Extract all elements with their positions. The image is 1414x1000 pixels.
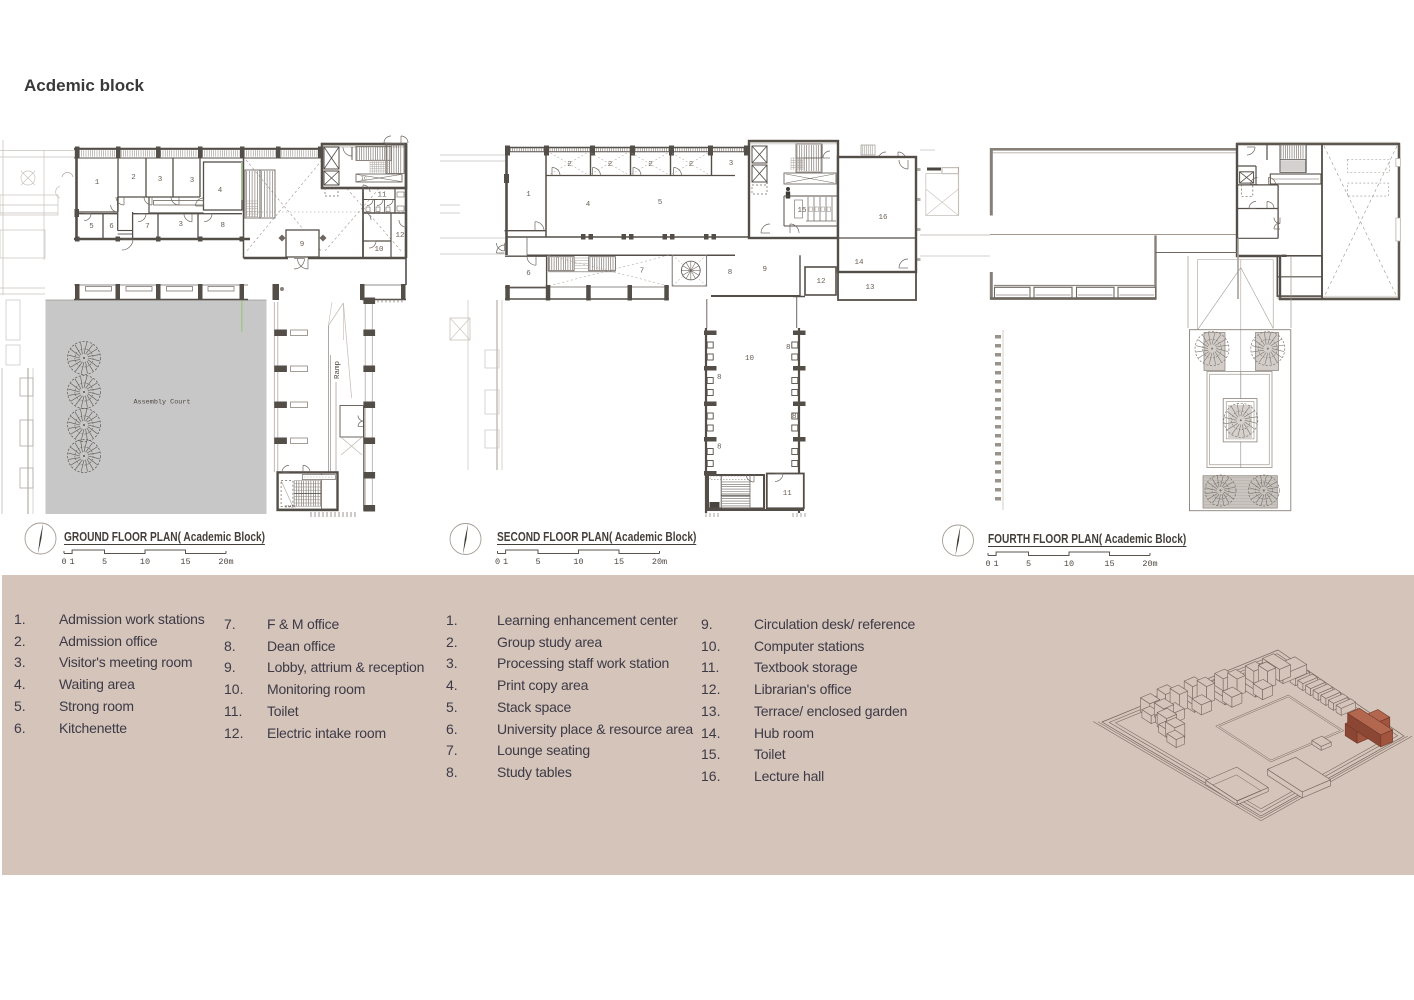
svg-text:3: 3 (190, 177, 195, 185)
svg-text:20m: 20m (218, 557, 233, 567)
svg-text:15: 15 (614, 557, 624, 567)
svg-text:5: 5 (89, 223, 94, 231)
svg-text:7: 7 (145, 223, 150, 231)
svg-text:8: 8 (717, 374, 722, 382)
svg-text:3: 3 (729, 160, 734, 168)
svg-text:6: 6 (526, 270, 531, 278)
svg-text:16: 16 (878, 214, 888, 222)
svg-text:12: 12 (395, 232, 404, 240)
svg-text:5: 5 (658, 199, 663, 207)
svg-text:9: 9 (300, 241, 305, 249)
svg-text:IC: IC (361, 176, 367, 182)
svg-text:1: 1 (526, 191, 531, 199)
svg-text:2: 2 (131, 174, 136, 182)
svg-text:10: 10 (374, 246, 384, 254)
svg-text:15: 15 (1104, 559, 1114, 569)
svg-text:14: 14 (854, 259, 864, 267)
svg-text:13: 13 (865, 284, 875, 292)
svg-text:8: 8 (728, 269, 733, 277)
svg-text:4: 4 (218, 187, 223, 195)
svg-text:12: 12 (816, 278, 825, 286)
svg-text:10: 10 (1064, 559, 1074, 569)
svg-text:7: 7 (640, 268, 645, 276)
svg-text:4: 4 (586, 201, 591, 209)
svg-text:15: 15 (180, 557, 190, 567)
svg-text:Ramp: Ramp (334, 361, 342, 379)
svg-text:Assembly Court: Assembly Court (133, 399, 190, 407)
svg-text:5: 5 (535, 557, 540, 567)
svg-text:8: 8 (220, 222, 225, 230)
svg-text:0: 0 (61, 557, 66, 567)
svg-text:8: 8 (717, 444, 722, 452)
svg-text:20m: 20m (1142, 559, 1157, 569)
svg-text:1: 1 (70, 557, 75, 567)
svg-text:11: 11 (783, 490, 793, 498)
svg-text:20m: 20m (652, 557, 667, 567)
svg-text:9: 9 (763, 266, 768, 274)
svg-text:10: 10 (573, 557, 583, 567)
svg-text:6: 6 (109, 223, 114, 231)
svg-text:0: 0 (495, 557, 500, 567)
svg-text:5: 5 (102, 557, 107, 567)
svg-text:1: 1 (503, 557, 508, 567)
svg-text:10: 10 (140, 557, 150, 567)
svg-text:8: 8 (786, 344, 791, 352)
svg-text:10: 10 (745, 355, 755, 363)
svg-text:1: 1 (95, 179, 100, 187)
svg-text:0: 0 (985, 559, 990, 569)
svg-text:5: 5 (1026, 559, 1031, 569)
svg-text:1: 1 (994, 559, 999, 569)
svg-text:8: 8 (792, 413, 797, 421)
svg-text:3: 3 (178, 221, 183, 229)
svg-text:3: 3 (158, 176, 163, 184)
svg-text:11: 11 (377, 192, 387, 200)
